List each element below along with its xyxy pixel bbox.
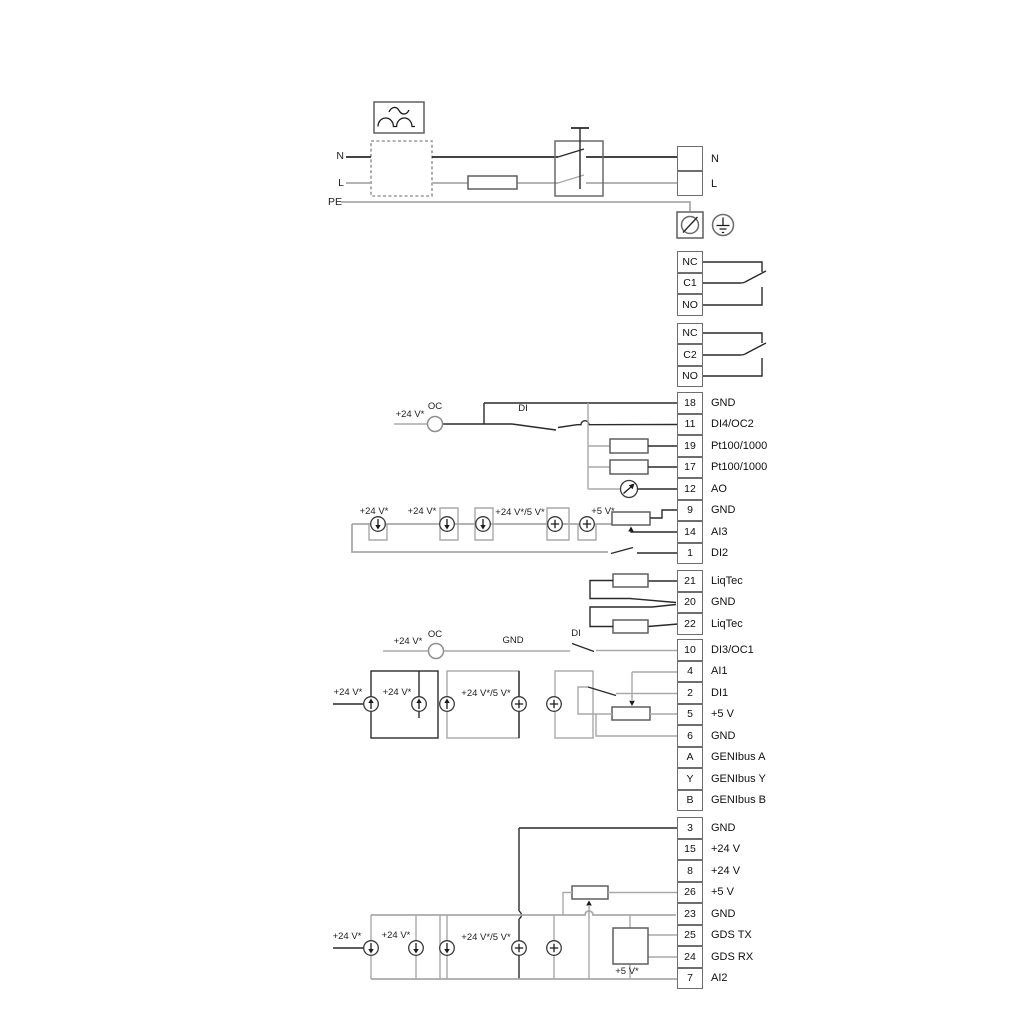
label-n-input: N bbox=[322, 150, 344, 162]
wiring-alt-loop-2 bbox=[447, 671, 519, 738]
terminal-2: 2DI1 bbox=[677, 682, 728, 704]
fuse-symbol bbox=[468, 176, 517, 189]
terminal-1: 1DI2 bbox=[677, 543, 728, 565]
relay1-terminal-nc: NC bbox=[677, 251, 703, 273]
relay2-terminal-nc: NC bbox=[677, 323, 703, 345]
relay2-terminal-c2: C2 bbox=[677, 344, 703, 366]
relay1-no-wire bbox=[702, 287, 762, 305]
power-terminal-n: N bbox=[677, 146, 719, 171]
terminal-10: 10DI3/OC1 bbox=[677, 639, 754, 661]
wiring-alt-loop-1 bbox=[371, 671, 438, 738]
terminal-26: 26+5 V bbox=[677, 882, 734, 904]
terminal-15: 15+24 V bbox=[677, 839, 740, 861]
label-24v-g2b: +24 V* bbox=[403, 506, 441, 517]
liqtec-resistor-2 bbox=[613, 620, 648, 633]
terminal-21: 21LiqTec bbox=[677, 570, 743, 592]
di4-switch-blade bbox=[512, 424, 556, 430]
terminal-20: 20GND bbox=[677, 592, 735, 614]
label-24v5v-g3: +24 V*/5 V* bbox=[458, 688, 514, 699]
pt100-resistor-1 bbox=[610, 439, 648, 453]
terminal-18: 18GND bbox=[677, 392, 735, 414]
di3-switch-blade bbox=[572, 644, 594, 652]
relay1-common-wire bbox=[702, 271, 766, 283]
pe-wire bbox=[341, 202, 690, 211]
label-24v-g5b: +24 V* bbox=[377, 930, 415, 941]
potentiometer-ai1 bbox=[612, 707, 650, 720]
di1-switch-blade bbox=[588, 687, 616, 696]
relay2-nc-wire bbox=[702, 333, 762, 343]
label-pe-input: PE bbox=[314, 196, 342, 208]
relay2-common-wire bbox=[702, 343, 766, 355]
label-24v-oc2: +24 V* bbox=[391, 409, 429, 420]
label-5v-gds: +5 V* bbox=[612, 966, 642, 977]
label-l-input: L bbox=[322, 177, 344, 189]
label-24v5v-g2: +24 V*/5 V* bbox=[492, 507, 548, 518]
terminal-genibus-b: BGENIbus B bbox=[677, 790, 766, 812]
label-24v-g5a: +24 V* bbox=[328, 931, 366, 942]
label-24v-g2a: +24 V* bbox=[355, 506, 393, 517]
label-24v-g3a: +24 V* bbox=[329, 687, 367, 698]
relay2-terminal-no: NO bbox=[677, 366, 703, 388]
relay1-terminal-c1: C1 bbox=[677, 273, 703, 295]
di2-switch-blade bbox=[611, 548, 633, 554]
pt100-resistor-2 bbox=[610, 460, 648, 474]
label-di-2: DI bbox=[566, 628, 586, 639]
terminal-8: 8+24 V bbox=[677, 860, 740, 882]
terminal-19: 19Pt100/1000 bbox=[677, 435, 767, 457]
potentiometer-ai2 bbox=[572, 886, 608, 899]
label-oc-1: OC bbox=[426, 401, 444, 412]
terminal-11: 11DI4/OC2 bbox=[677, 414, 754, 436]
potentiometer-ai3 bbox=[612, 512, 650, 525]
terminal-22: 22LiqTec bbox=[677, 613, 743, 635]
open-collector-icon-2 bbox=[429, 644, 444, 659]
terminal-6: 6GND bbox=[677, 725, 735, 747]
rectifier-symbol-box bbox=[374, 102, 424, 133]
label-24v5v-g5: +24 V*/5 V* bbox=[458, 932, 514, 943]
terminal-7: 7AI2 bbox=[677, 968, 728, 990]
terminal-25: 25GDS TX bbox=[677, 925, 752, 947]
wiring-diagram: N L PE N L NC C1 NO NC C2 NO 18GND 11DI4… bbox=[0, 0, 1024, 1024]
label-gnd-wire: GND bbox=[499, 635, 527, 646]
terminal-genibus-y: YGENIbus Y bbox=[677, 768, 766, 790]
label-5v-g2: +5 V* bbox=[589, 506, 617, 517]
terminal-24: 24GDS RX bbox=[677, 946, 753, 968]
label-oc-2: OC bbox=[426, 629, 444, 640]
terminal-5: 5+5 V bbox=[677, 704, 734, 726]
relay1-terminal-no: NO bbox=[677, 294, 703, 316]
terminal-9: 9GND bbox=[677, 500, 735, 522]
terminal-23: 23GND bbox=[677, 903, 735, 925]
label-24v-g3b: +24 V* bbox=[378, 687, 416, 698]
main-switch-box bbox=[555, 141, 603, 196]
label-24v-oc1: +24 V* bbox=[389, 636, 427, 647]
relay1-nc-wire bbox=[702, 262, 762, 272]
terminal-genibus-a: AGENIbus A bbox=[677, 747, 765, 769]
filter-box-dashed bbox=[371, 141, 432, 196]
terminal-4: 4AI1 bbox=[677, 661, 728, 683]
terminal-12: 12AO bbox=[677, 478, 727, 500]
terminal-17: 17Pt100/1000 bbox=[677, 457, 767, 479]
label-di-1: DI bbox=[512, 403, 534, 414]
open-collector-icon-1 bbox=[428, 417, 443, 432]
terminal-3: 3GND bbox=[677, 817, 735, 839]
liqtec-resistor-1 bbox=[613, 574, 648, 587]
gds-sensor-box bbox=[613, 928, 648, 964]
terminal-14: 14AI3 bbox=[677, 521, 728, 543]
relay2-no-wire bbox=[702, 358, 762, 376]
power-terminal-l: L bbox=[677, 171, 717, 196]
